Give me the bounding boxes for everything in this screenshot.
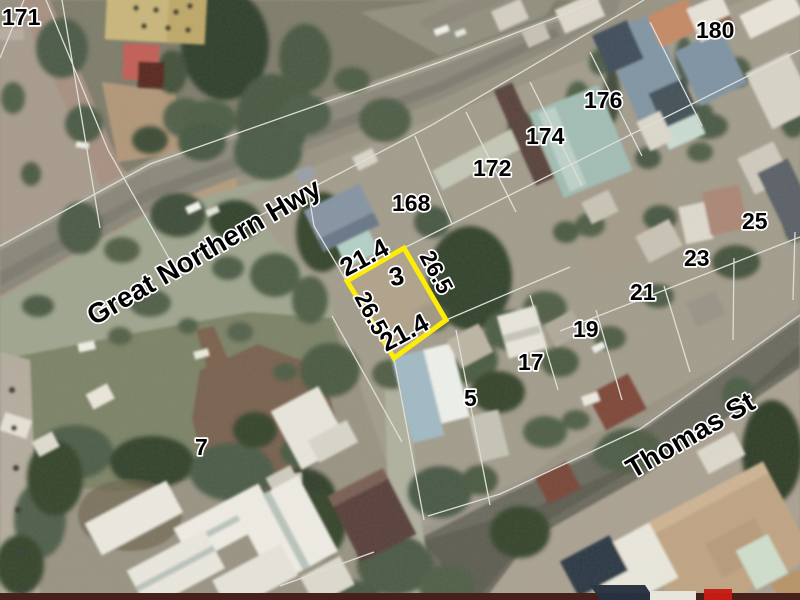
- svg-text:174: 174: [526, 123, 565, 149]
- svg-text:5: 5: [464, 385, 477, 411]
- svg-text:23: 23: [684, 245, 710, 271]
- svg-text:25: 25: [742, 208, 768, 234]
- svg-text:180: 180: [696, 17, 734, 43]
- svg-text:17: 17: [518, 349, 544, 375]
- svg-text:168: 168: [392, 190, 431, 216]
- svg-text:7: 7: [195, 434, 208, 460]
- svg-text:172: 172: [473, 155, 511, 181]
- svg-text:19: 19: [573, 316, 599, 342]
- svg-text:171: 171: [2, 4, 41, 30]
- svg-text:21: 21: [630, 279, 656, 305]
- svg-text:176: 176: [584, 87, 622, 113]
